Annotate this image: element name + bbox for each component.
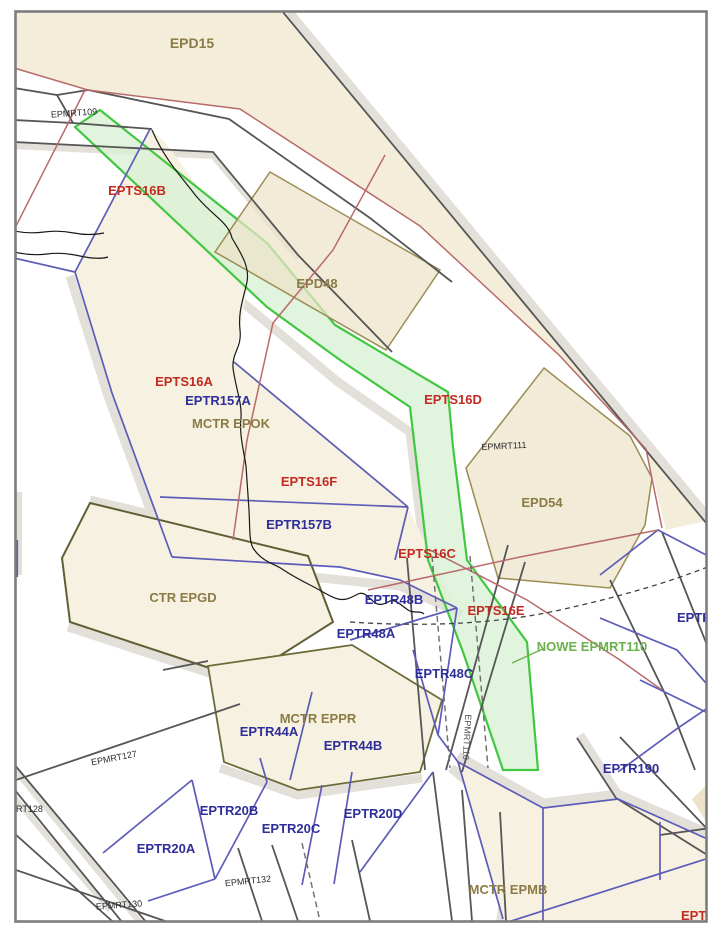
zone-label-epd48: EPD48 bbox=[296, 276, 337, 291]
zone-label-epts16f: EPTS16F bbox=[281, 474, 337, 489]
route-label-rt128-clipped: RT128 bbox=[16, 804, 43, 814]
zone-label-ctr-epgd: CTR EPGD bbox=[149, 590, 216, 605]
zone-label-epts16b: EPTS16B bbox=[108, 183, 166, 198]
zone-label-epts16c: EPTS16C bbox=[398, 546, 456, 561]
zone-label-eptr44b: EPTR44B bbox=[324, 738, 383, 753]
zone-label-epts16d: EPTS16D bbox=[424, 392, 482, 407]
zone-label-epd15: EPD15 bbox=[170, 35, 215, 51]
route-label-nowe-epmrt110: NOWE EPMRT110 bbox=[537, 639, 648, 654]
zone-label-eptr44a: EPTR44A bbox=[240, 724, 299, 739]
zone-label-eptr157b: EPTR157B bbox=[266, 517, 332, 532]
zone-label-eptr48a: EPTR48A bbox=[337, 626, 396, 641]
zone-label-mctr-epmb: MCTR EPMB bbox=[469, 882, 548, 897]
zone-label-eptr48b: EPTR48B bbox=[365, 592, 424, 607]
zone-label-mctr-epok: MCTR EPOK bbox=[192, 416, 271, 431]
airspace-map-canvas: EPD15 EPMRT109 EPTS16B EPD48 EPTS16A EPT… bbox=[0, 0, 722, 933]
zone-label-epd54: EPD54 bbox=[521, 495, 563, 510]
zone-label-eptr157a: EPTR157A bbox=[185, 393, 251, 408]
zone-label-eptr48c: EPTR48C bbox=[415, 666, 474, 681]
zone-label-epts16a: EPTS16A bbox=[155, 374, 213, 389]
zone-label-epts16e: EPTS16E bbox=[467, 603, 524, 618]
zone-label-eptr20d: EPTR20D bbox=[344, 806, 403, 821]
zone-label-eptr20c: EPTR20C bbox=[262, 821, 321, 836]
zone-label-eptr190: EPTR190 bbox=[603, 761, 659, 776]
zone-label-eptr20a: EPTR20A bbox=[137, 841, 196, 856]
airspace-map: EPD15 EPMRT109 EPTS16B EPD48 EPTS16A EPT… bbox=[0, 0, 722, 933]
zone-label-eptr20b: EPTR20B bbox=[200, 803, 259, 818]
